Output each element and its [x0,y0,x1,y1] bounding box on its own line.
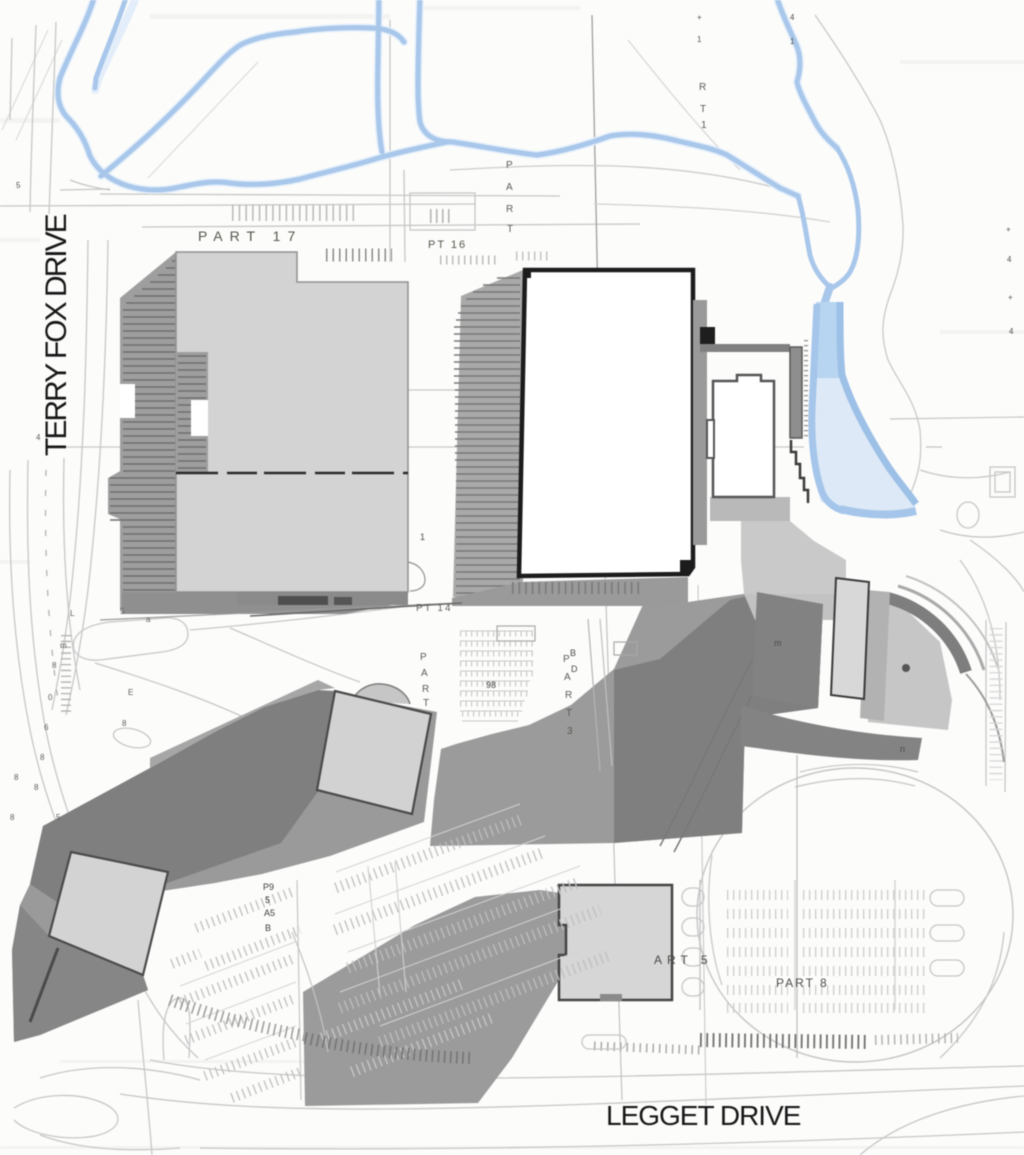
svg-text:8: 8 [122,719,127,728]
svg-text:PART 8: PART 8 [776,976,829,990]
svg-text:P: P [506,160,513,171]
svg-text:P9: P9 [263,882,274,892]
svg-text:A: A [564,672,571,683]
svg-text:ART 5: ART 5 [654,953,713,967]
svg-text:PT 16: PT 16 [428,239,467,251]
svg-text:m: m [774,638,782,648]
svg-text:1: 1 [790,37,795,46]
svg-text:5: 5 [265,895,270,905]
svg-text:R: R [699,82,706,93]
svg-text:R: R [506,204,513,215]
svg-text:B: B [570,648,576,658]
svg-text:P: P [563,654,570,665]
svg-text:+: + [1006,225,1011,234]
svg-text:5: 5 [120,607,125,616]
svg-text:5: 5 [56,813,61,822]
svg-text:1: 1 [420,532,425,542]
svg-text:R: R [565,690,572,701]
svg-text:1: 1 [701,120,707,131]
svg-text:8: 8 [34,783,39,792]
svg-text:L: L [70,609,75,618]
svg-text:T: T [566,708,572,719]
svg-text:+: + [697,13,702,22]
svg-text:A5: A5 [264,908,275,918]
svg-text:8: 8 [10,813,15,822]
svg-text:6: 6 [44,723,49,732]
svg-text:5: 5 [16,181,21,190]
svg-text:T: T [700,104,706,115]
svg-text:8: 8 [40,753,45,762]
svg-text:4: 4 [1009,327,1014,336]
svg-text:A: A [421,668,428,679]
svg-text:T: T [507,224,513,235]
svg-text:4: 4 [790,13,795,22]
svg-text:8: 8 [14,773,19,782]
svg-text:4: 4 [1007,255,1012,264]
svg-text:P: P [420,652,427,663]
svg-text:PART 17: PART 17 [198,228,302,244]
svg-text:T: T [423,698,429,709]
svg-text:LEGGET DRIVE: LEGGET DRIVE [606,1100,801,1131]
svg-text:0: 0 [48,693,53,702]
svg-text:8: 8 [52,661,57,670]
svg-text:R: R [422,684,429,695]
svg-text:E: E [128,688,133,697]
svg-text:1: 1 [697,35,702,44]
svg-text:B: B [265,923,271,933]
svg-text:TERRY FOX DRIVE: TERRY FOX DRIVE [40,214,73,456]
svg-text:a: a [146,615,151,624]
svg-text:D: D [571,664,578,674]
svg-text:A: A [506,182,513,193]
svg-text:98: 98 [486,680,496,690]
svg-text:m: m [60,641,67,650]
svg-text:3: 3 [567,726,573,737]
svg-text:PT 14: PT 14 [416,603,453,614]
svg-text:n: n [900,744,905,754]
svg-text:+: + [1008,293,1013,302]
